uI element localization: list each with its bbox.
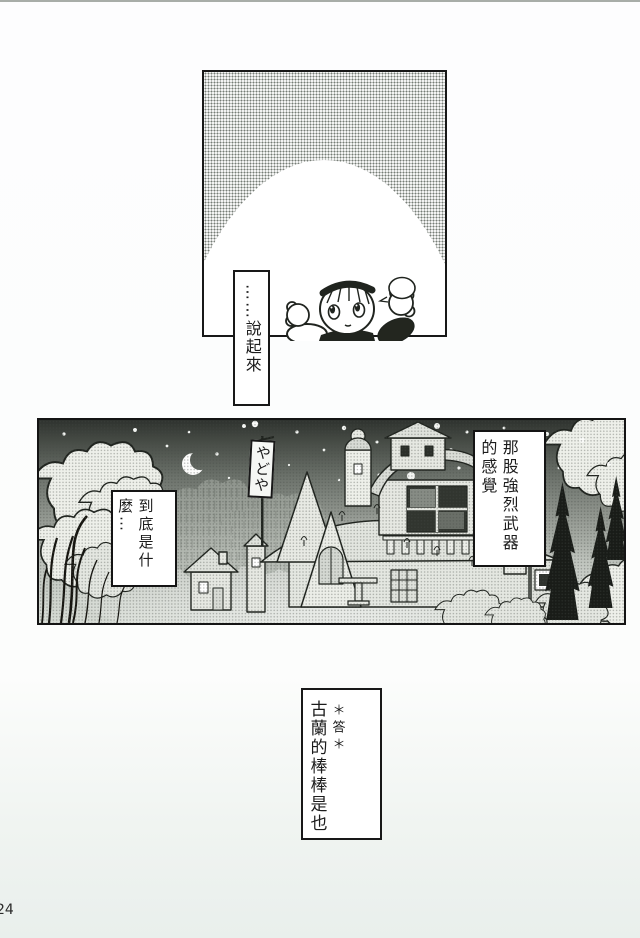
girl-pigtail-left: [286, 302, 309, 326]
answer-columns: ＊答＊ 古蘭的棒棒是也: [303, 700, 346, 838]
balloon-what-col1: 到底是什: [136, 498, 153, 585]
speech-bubble-text: ……說起來: [242, 284, 260, 404]
girl-right-arm: [374, 313, 418, 341]
scan-edge: [0, 0, 640, 2]
speech-bubble: ……說起來: [233, 270, 270, 406]
page-number: 24: [0, 902, 14, 918]
balloon-what-columns: 到底是什 麼…: [113, 498, 157, 585]
balloon-what: 到底是什 麼…: [111, 490, 177, 587]
girl-art: [286, 278, 418, 342]
balloon-feeling-columns: 那股強烈武器 的感覺: [475, 439, 521, 565]
balloon-what-col2: 麼…: [116, 498, 133, 585]
inn-banner-text: やどや: [253, 445, 271, 497]
inn-banner-sign: やどや: [247, 439, 275, 498]
answer-box: ＊答＊ 古蘭的棒棒是也: [301, 688, 382, 840]
girl-character: [281, 271, 421, 341]
balloon-feeling-col1: 那股強烈武器: [499, 439, 517, 565]
answer-text: 古蘭的棒棒是也: [306, 700, 326, 838]
answer-marker: ＊答＊: [329, 703, 344, 838]
balloon-feeling: 那股強烈武器 的感覺: [473, 430, 546, 567]
night-scene-panel: やどや 到底是什 麼… 那股強烈武器 的感覺: [37, 418, 626, 625]
balloon-feeling-col2: 的感覺: [478, 439, 496, 565]
